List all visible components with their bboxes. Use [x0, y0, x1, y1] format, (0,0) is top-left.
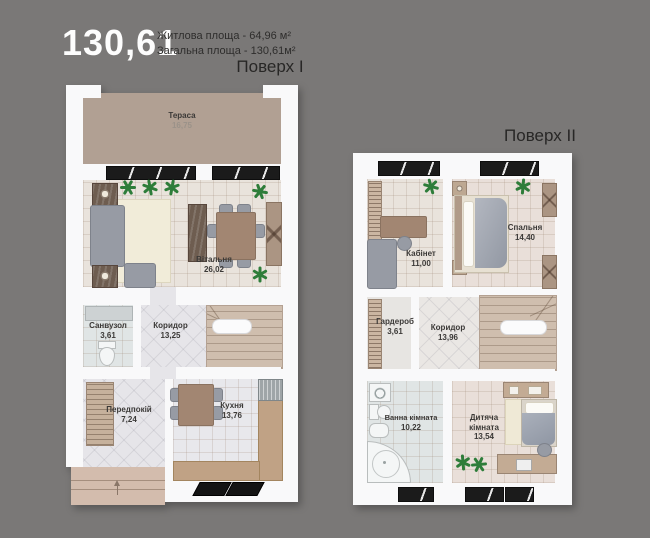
wardrobe	[542, 183, 557, 217]
room-label-living: Вітальня 26,02	[171, 255, 257, 274]
armchair	[124, 263, 156, 288]
window-icon	[465, 487, 504, 502]
wall-right	[281, 85, 298, 479]
plant-icon	[120, 186, 136, 189]
room-label-wc: Санвузол 3,61	[83, 321, 133, 340]
dresser-item	[509, 386, 519, 395]
wall-band	[367, 369, 555, 381]
window-icon	[505, 487, 534, 502]
wall-band	[83, 287, 281, 305]
lamp-icon	[98, 187, 112, 201]
entry-arrow-icon	[117, 483, 118, 495]
stove-hood-icon	[258, 379, 283, 401]
wall-corner-tr	[263, 85, 281, 98]
header-info: Житлова площа - 64,96 м² Загальна площа …	[157, 29, 295, 59]
dresser	[503, 382, 549, 398]
floor2-title: Поверх II	[470, 126, 610, 146]
pillow	[463, 201, 474, 267]
room-label-kitchen: Кухня 13,76	[196, 401, 268, 420]
door-opening	[150, 367, 176, 379]
wall-right	[555, 153, 572, 505]
lamp-icon	[98, 269, 112, 283]
sofa	[90, 205, 125, 267]
door-opening	[150, 287, 176, 305]
lamp-icon	[455, 184, 464, 193]
wall-office-bedroom	[443, 179, 452, 287]
bathtub-basin	[372, 450, 400, 478]
wall-left	[353, 153, 367, 505]
window-icon	[480, 161, 539, 176]
kids-bed	[521, 399, 557, 447]
porch-step-line	[71, 489, 165, 490]
wall-bath-kids	[443, 381, 452, 483]
tv-stand	[188, 204, 207, 262]
desk-chair	[537, 443, 552, 457]
side-table	[92, 265, 118, 288]
bed-headboard	[455, 196, 462, 270]
blanket	[522, 413, 555, 445]
sink-counter	[85, 306, 133, 321]
window-icon	[378, 161, 440, 176]
room-label-corridor2: Коридор 13,96	[413, 323, 483, 342]
wall-corner-tl	[83, 85, 101, 98]
kitchen-counter	[173, 461, 260, 481]
floor2-plan: Кабінет 11,00 Спальня 14,40 Гардероб 3,6…	[353, 153, 572, 520]
room-label-bathroom: Ванна кімната 10,22	[379, 413, 443, 432]
cabinet	[266, 202, 282, 266]
room-label-kids: Дитяча кімната 13,54	[455, 413, 513, 442]
living-area-text: Житлова площа - 64,96 м²	[157, 29, 295, 44]
window-icon	[398, 487, 434, 502]
stairs	[206, 305, 283, 369]
room-label-hall: Передпокій 7,24	[94, 405, 164, 424]
kids-desk	[497, 454, 557, 474]
room-label-bedroom: Спальня 14,40	[490, 223, 560, 242]
room-label-corridor1: Коридор 13,25	[133, 321, 208, 340]
floor1-title: Поверх I	[200, 57, 340, 77]
floorplan-scene: 130,61 Житлова площа - 64,96 м² Загальна…	[0, 0, 650, 538]
room-label-office: Кабінет 11,00	[391, 249, 451, 268]
washing-machine-icon	[369, 383, 391, 402]
wall-left	[66, 85, 83, 467]
side-table	[92, 183, 118, 206]
porch	[71, 467, 165, 505]
floor1-plan: Тераса 16,75 Вітальня	[66, 85, 298, 505]
laptop-icon	[516, 459, 532, 471]
window-icon	[106, 166, 196, 180]
dining-table	[216, 212, 256, 260]
room-label-terrace: Тераса 16,75	[132, 111, 232, 130]
stair-rail	[212, 319, 252, 334]
nightstand	[452, 181, 467, 196]
stair-rail	[500, 320, 547, 335]
wardrobe	[542, 255, 557, 289]
window-icon	[212, 166, 280, 180]
wall-band	[83, 367, 281, 379]
dresser-item	[528, 386, 542, 395]
drain-dot	[383, 461, 386, 464]
desk	[380, 216, 427, 238]
